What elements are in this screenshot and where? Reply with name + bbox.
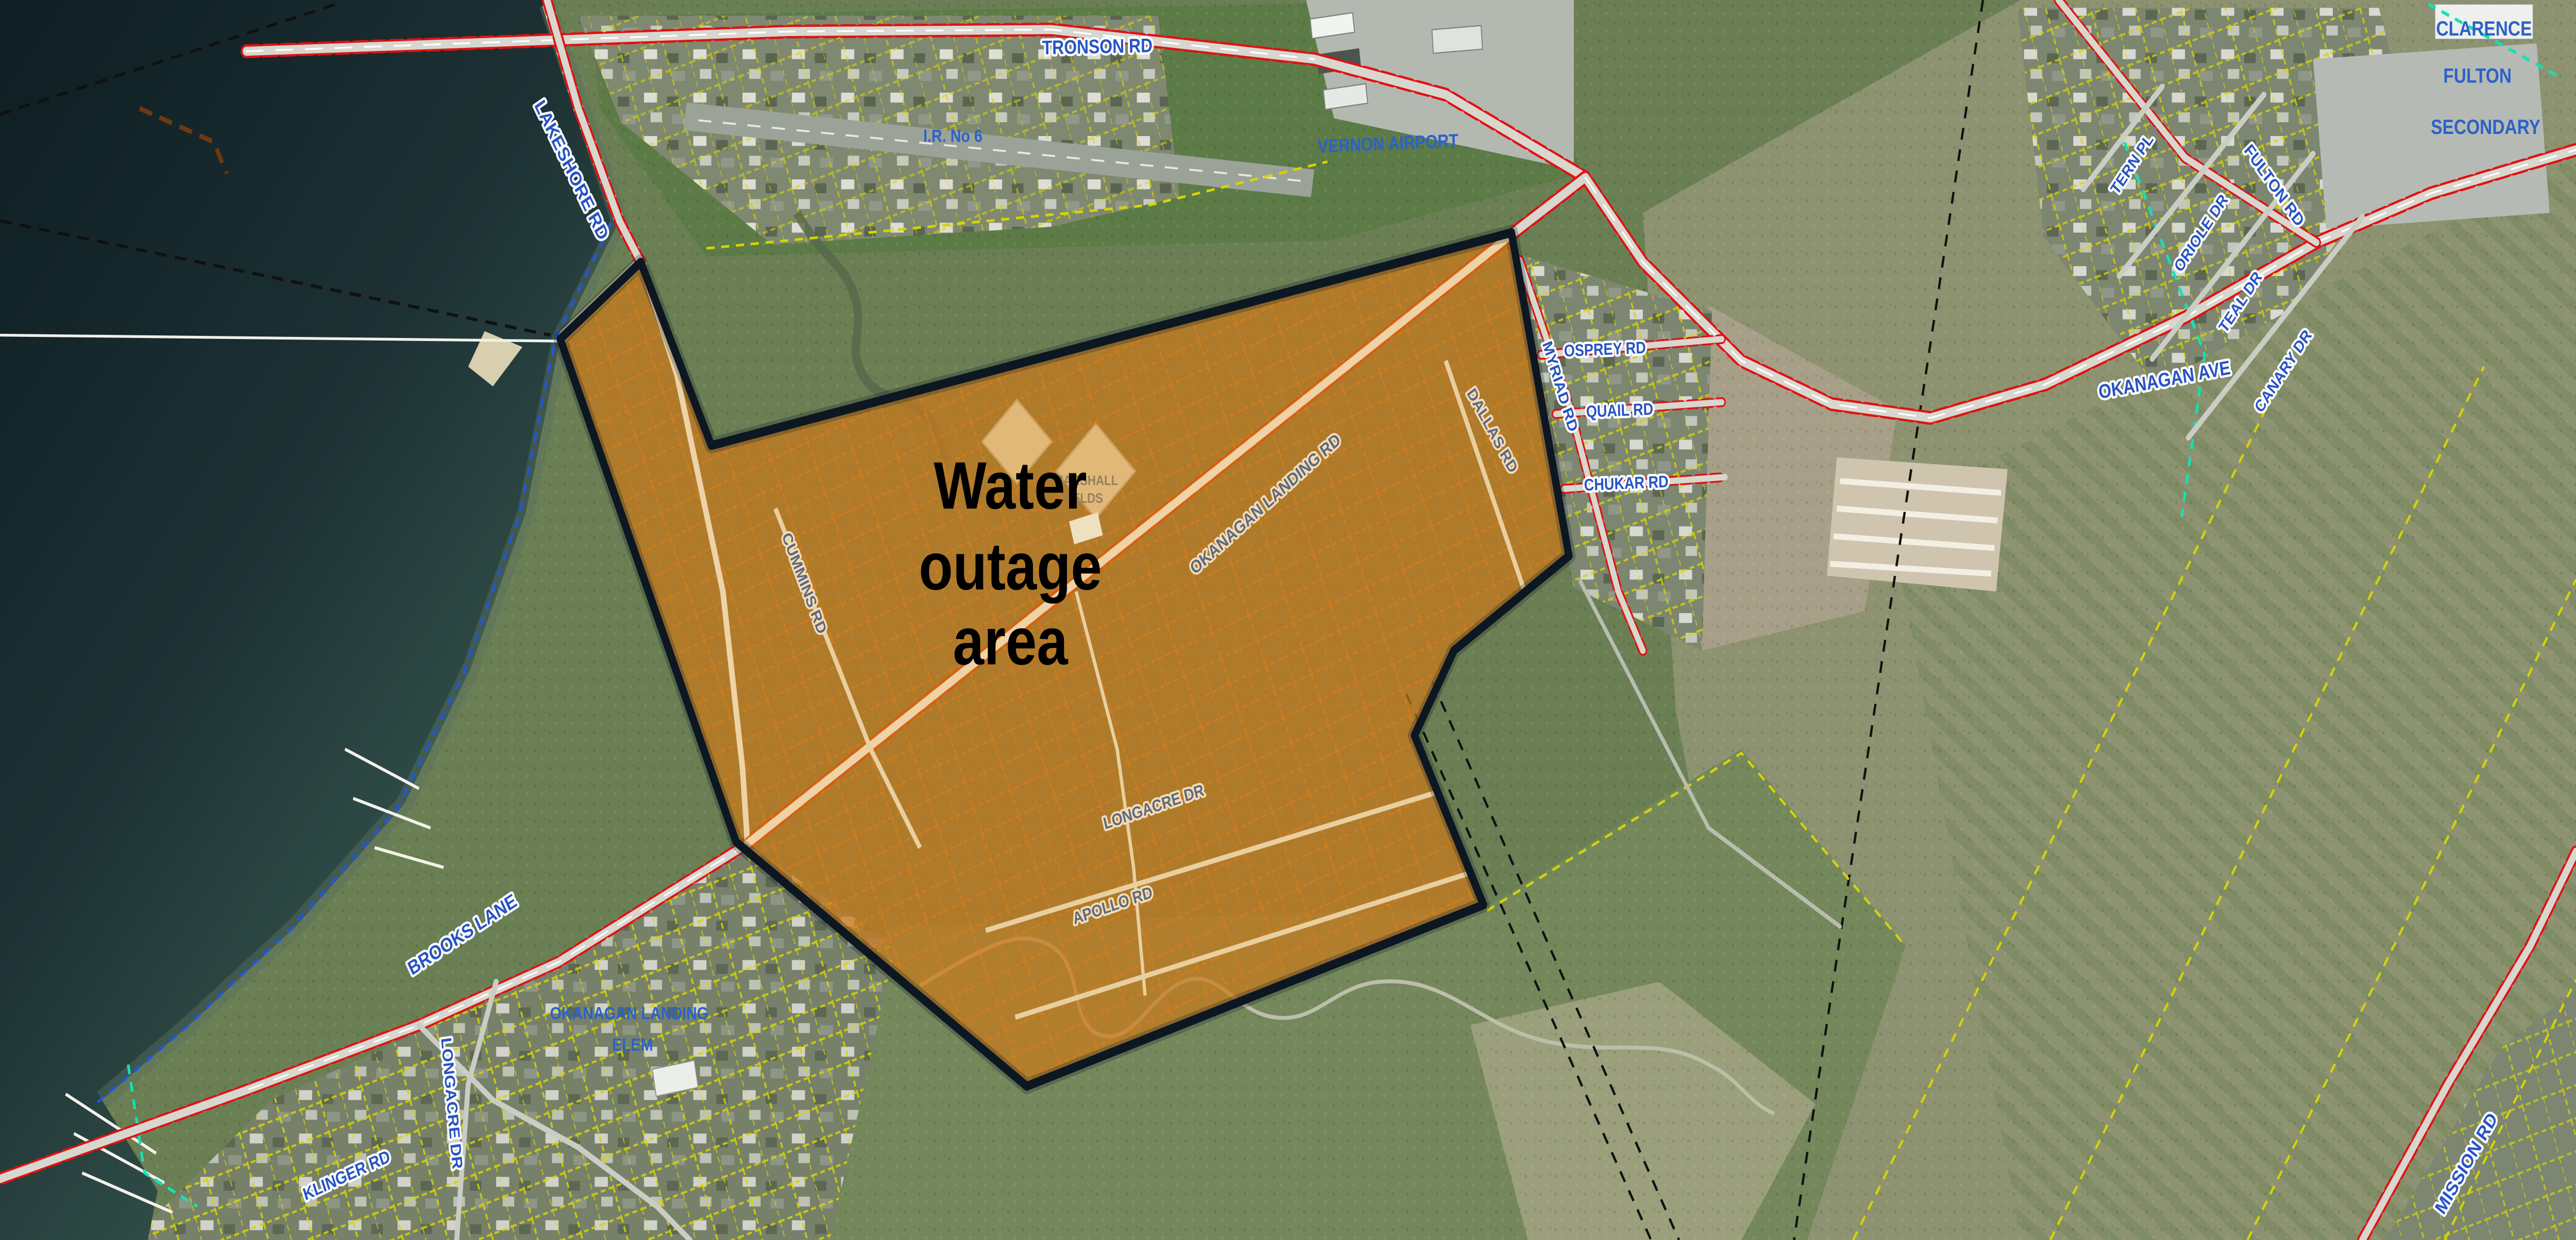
hangar-4 <box>1432 26 1482 54</box>
label-quail-rd: QUAIL RD <box>1586 400 1653 421</box>
annotation-line-3: area <box>953 604 1069 678</box>
label-clarence-3: SECONDARY <box>2431 115 2540 139</box>
label-clarence-2: FULTON <box>2443 64 2512 88</box>
label-elem-1: OKANAGAN LANDING <box>550 1003 709 1023</box>
storage-yard <box>1827 457 2008 591</box>
label-osprey-rd: OSPREY RD <box>1564 338 1646 360</box>
label-clarence-1: CLARENCE <box>2436 17 2532 40</box>
annotation-line-1: Water <box>934 449 1087 523</box>
map-svg: TRONSON RD LAKESHORE RD OSPREY RD QUAIL … <box>0 0 2576 1240</box>
label-tronson-rd: TRONSON RD <box>1042 35 1153 59</box>
label-ir-no-6: I.R. No 6 <box>923 126 982 146</box>
label-chukar-rd: CHUKAR RD <box>1584 472 1669 495</box>
annotation-line-2: outage <box>919 530 1101 604</box>
label-elem-2: ELEM <box>612 1034 653 1055</box>
